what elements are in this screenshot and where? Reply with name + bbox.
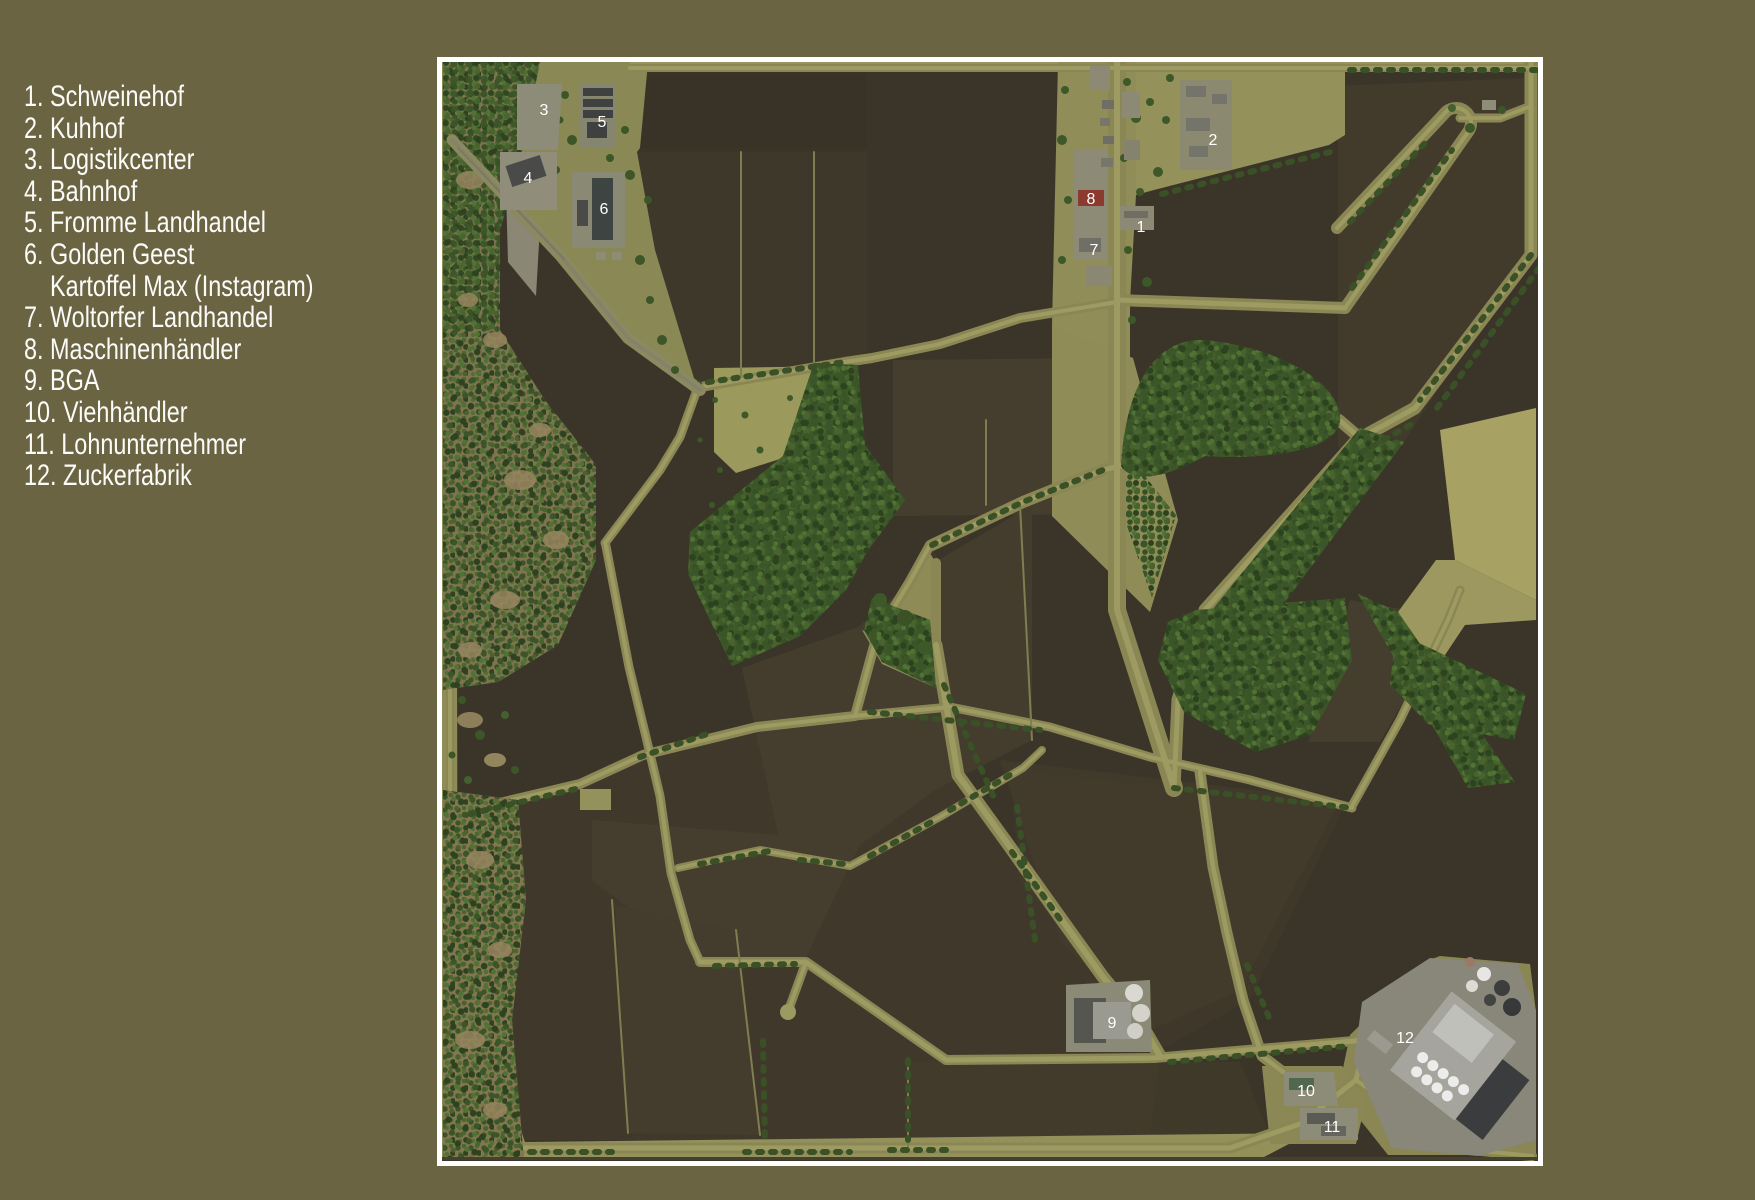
svg-text:9: 9: [1108, 1015, 1117, 1032]
svg-text:11: 11: [1324, 1119, 1341, 1136]
svg-text:4: 4: [524, 170, 533, 187]
svg-text:5: 5: [598, 114, 607, 131]
svg-text:1: 1: [1137, 219, 1146, 236]
svg-text:2: 2: [1209, 132, 1218, 149]
svg-text:8: 8: [1087, 191, 1096, 208]
svg-text:12: 12: [1396, 1030, 1414, 1047]
svg-text:3: 3: [540, 102, 549, 119]
svg-text:10: 10: [1297, 1083, 1315, 1100]
svg-text:7: 7: [1090, 242, 1099, 259]
svg-text:6: 6: [600, 201, 609, 218]
